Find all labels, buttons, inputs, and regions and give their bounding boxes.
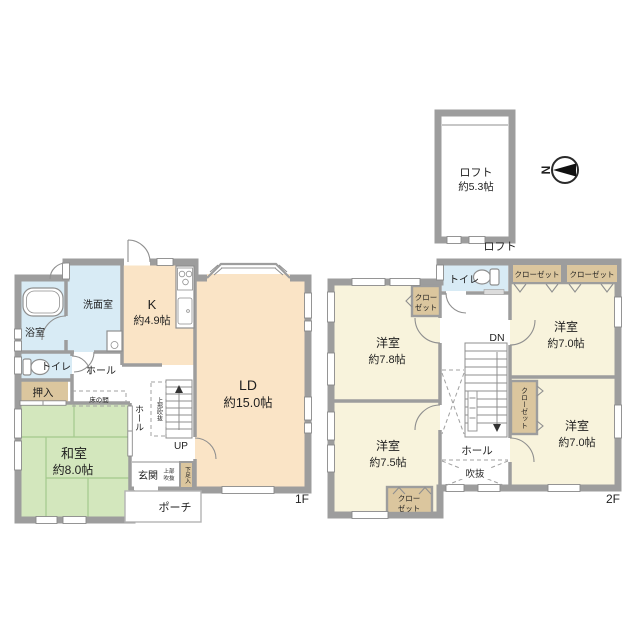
room-se-size: 約7.0帖 bbox=[558, 435, 595, 449]
window-slit bbox=[305, 423, 312, 433]
tokonoma-label: 床の間 bbox=[89, 395, 109, 404]
window-slit bbox=[305, 321, 312, 331]
dn-label: DN bbox=[489, 332, 504, 344]
entrance-void-label: 吹抜 bbox=[163, 474, 175, 482]
loft-window bbox=[447, 237, 461, 244]
washitsu-size-label: 約8.0帖 bbox=[53, 462, 94, 477]
room-nw-label: 洋室 bbox=[376, 335, 400, 350]
floor1-label: 1F bbox=[295, 492, 309, 506]
up-label: UP bbox=[174, 441, 188, 452]
bathtub-icon bbox=[23, 288, 63, 316]
loft-size-label: 約5.3帖 bbox=[458, 180, 494, 193]
ld-label: LD bbox=[239, 377, 257, 393]
north-compass: N bbox=[539, 157, 578, 183]
washbasin-icon bbox=[107, 331, 122, 351]
stair-void-label: 上部吹抜 bbox=[156, 396, 163, 422]
bathroom-label: 浴室 bbox=[25, 326, 45, 339]
window-slit bbox=[63, 517, 86, 524]
window-slit bbox=[328, 353, 335, 385]
washitsu-label: 和室 bbox=[61, 446, 87, 461]
toilet-counter bbox=[484, 290, 504, 295]
window-slit bbox=[36, 517, 57, 524]
window-slit bbox=[328, 412, 335, 440]
bay-window bbox=[207, 264, 290, 282]
floorplan-page: ロフト 約5.3帖 ロフト N bbox=[0, 0, 640, 640]
floorplan-drawing: ロフト 約5.3帖 ロフト N bbox=[0, 0, 640, 640]
toilet-label-2f: トイレ bbox=[449, 275, 479, 286]
window-slit bbox=[328, 445, 335, 472]
handrail-strip bbox=[468, 391, 477, 431]
hall-label-2f: ホール bbox=[461, 445, 493, 457]
loft-caption: ロフト bbox=[484, 241, 517, 253]
entrance-void-label: 上部 bbox=[163, 467, 175, 475]
window-slit bbox=[15, 409, 22, 438]
floor2-label: 2F bbox=[606, 492, 620, 506]
window-slit bbox=[352, 279, 385, 286]
void-label: 吹抜 bbox=[465, 468, 485, 480]
room-sw-size: 約7.5帖 bbox=[369, 455, 406, 469]
closet-sw-label: クロー bbox=[398, 494, 421, 503]
hall-label-1f: ホール bbox=[86, 365, 116, 377]
entrance-label: 玄関 bbox=[138, 469, 158, 482]
window-slit bbox=[352, 512, 388, 519]
window-slit bbox=[15, 357, 22, 374]
compass-north-label: N bbox=[539, 166, 553, 175]
window-slit bbox=[222, 487, 274, 494]
floor1-stairs: 上部吹抜 UP ホール bbox=[134, 380, 192, 452]
window-slit bbox=[478, 485, 500, 492]
down-arrow-icon bbox=[493, 424, 501, 432]
shoe-cabinet-label: 下足入 bbox=[184, 466, 191, 484]
toilet-door-arc-2f bbox=[446, 293, 466, 313]
closet-top-a-label: クローゼット bbox=[515, 269, 560, 279]
window-slit bbox=[15, 441, 22, 470]
oshiire-label: 押入 bbox=[33, 386, 54, 399]
room-nw-size: 約7.8帖 bbox=[368, 352, 405, 366]
up-arrow-icon bbox=[175, 385, 183, 393]
window-slit bbox=[390, 279, 420, 286]
window-slit bbox=[548, 485, 580, 492]
toilet-label-1f: トイレ bbox=[41, 362, 71, 373]
window-slit bbox=[305, 293, 312, 318]
kitchen-label: K bbox=[148, 297, 157, 312]
window-slit bbox=[437, 265, 444, 280]
window-slit bbox=[446, 485, 464, 492]
floor2-stairs: DN 吹抜 ホール bbox=[442, 332, 508, 487]
closet-nw-label: ゼット bbox=[415, 302, 438, 312]
toilet-tank-icon bbox=[23, 359, 31, 375]
closet-nw-label: クロー bbox=[415, 293, 438, 302]
toilet-tank-icon-2f bbox=[490, 269, 499, 285]
loft-name-label: ロフト bbox=[460, 167, 493, 179]
window-slit bbox=[157, 259, 173, 266]
ld-size-label: 約15.0帖 bbox=[223, 395, 272, 410]
entrance-area: 下足入 玄関 上部 吹抜 ポーチ bbox=[125, 462, 201, 522]
porch-label: ポーチ bbox=[159, 501, 192, 514]
closet-top-b-label: クローゼット bbox=[570, 269, 615, 279]
room-sw-label: 洋室 bbox=[376, 438, 400, 453]
room-ne-size: 約7.0帖 bbox=[547, 336, 584, 350]
window-slit bbox=[15, 341, 22, 351]
window-slit bbox=[615, 297, 622, 327]
kitchen-size-label: 約4.9帖 bbox=[133, 313, 170, 327]
window-slit bbox=[15, 329, 22, 339]
stair-hall-label-1f: ホール bbox=[134, 404, 144, 431]
loft-plan: ロフト 約5.3帖 ロフト bbox=[438, 113, 517, 253]
room-se-label: 洋室 bbox=[565, 418, 589, 433]
room-ne-label: 洋室 bbox=[554, 319, 578, 334]
window-slit bbox=[328, 292, 335, 322]
door-gap bbox=[63, 263, 70, 279]
closet-mid-label: クローゼット bbox=[521, 387, 529, 429]
closet-sw-label: ゼット bbox=[398, 503, 421, 513]
window-slit bbox=[305, 397, 312, 420]
washroom-label: 洗面室 bbox=[83, 298, 113, 311]
window-slit bbox=[615, 405, 622, 438]
